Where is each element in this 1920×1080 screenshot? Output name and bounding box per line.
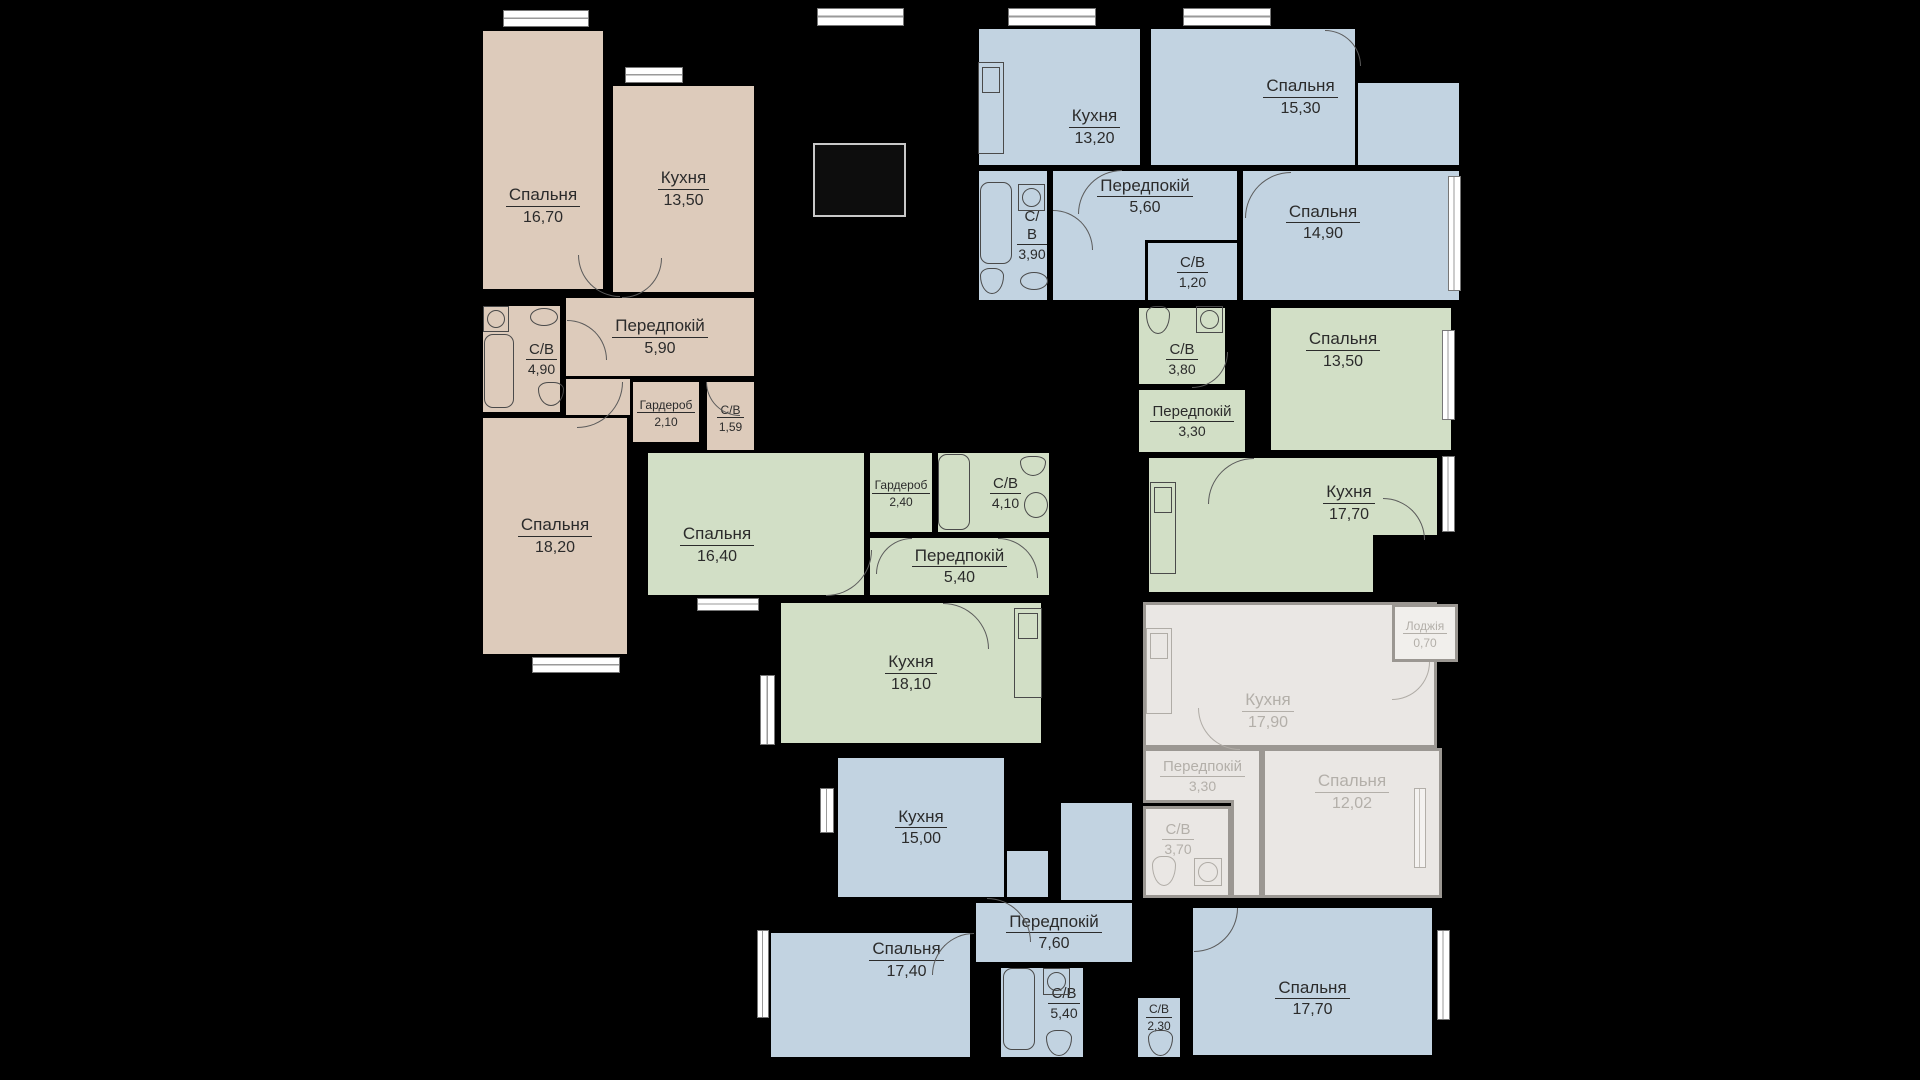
room-label: С/В 3,90 (1017, 208, 1047, 263)
room-loggia: Лоджія 0,70 (1392, 604, 1458, 662)
room-area-label: 17,90 (1242, 712, 1294, 732)
window (1442, 456, 1455, 532)
bathtub-icon (938, 454, 970, 530)
room-label: Передпокій 3,30 (1150, 402, 1235, 440)
room-label: С/В 4,90 (526, 340, 557, 378)
room-area-label: 5,90 (612, 338, 708, 358)
room-area-label: 18,10 (885, 674, 937, 694)
room-name-label: Спальня (1263, 76, 1337, 97)
stair-core (813, 143, 906, 217)
window (757, 930, 769, 1018)
room-area-label: 14,90 (1286, 223, 1360, 243)
room-label: С/В 4,10 (990, 474, 1021, 512)
room-area-label: 1,20 (1177, 273, 1208, 291)
window (1448, 176, 1461, 291)
room-bedroom: Спальня 18,20 (480, 415, 630, 657)
washing-machine-icon (1043, 968, 1070, 995)
room-label: Гардероб 2,10 (637, 395, 696, 430)
room-label: Лоджія 0,70 (1403, 616, 1447, 651)
room-name-label: Лоджія (1403, 619, 1447, 634)
window (532, 657, 620, 673)
room-name-label: Передпокій (612, 316, 708, 337)
room-name-label: Спальня (680, 524, 754, 545)
room-name-label: С/В (1177, 254, 1208, 273)
window (697, 598, 759, 611)
washing-machine-icon (1196, 306, 1223, 333)
room-area-label: 3,30 (1150, 422, 1235, 440)
window (820, 788, 834, 833)
room-label: Кухня 13,20 (1069, 106, 1121, 148)
bathtub-icon (1003, 968, 1035, 1050)
floor-plan: Спальня 16,70 Кухня 13,50 С/В 4,90 Перед… (0, 0, 1920, 1080)
room-name-label: Кухня (1069, 106, 1121, 127)
room-label: Спальня 17,70 (1275, 978, 1349, 1020)
window (1183, 8, 1271, 26)
kitchen-counter-icon (978, 62, 1004, 154)
room-name-label: Спальня (506, 185, 580, 206)
window (503, 10, 589, 27)
window (1437, 930, 1450, 1020)
room-name-label: Спальня (1315, 771, 1389, 792)
room-area-label: 18,20 (518, 537, 592, 557)
sink-icon (1020, 272, 1048, 290)
room-area-label: 16,40 (680, 546, 754, 566)
room-wardrobe: Гардероб 2,10 (630, 379, 702, 445)
bathtub-icon (980, 182, 1012, 264)
room-name-label: Кухня (1323, 482, 1375, 503)
room-name-label: С/В (1162, 821, 1193, 840)
room-label: Спальня 15,30 (1263, 76, 1337, 118)
window (1414, 788, 1426, 868)
room-area-label: 13,50 (1306, 351, 1380, 371)
room-area-label: 16,70 (506, 207, 580, 227)
sink-icon (530, 308, 558, 326)
room-area-label: 15,00 (895, 828, 947, 848)
room-area-label: 0,70 (1403, 635, 1447, 650)
room-kitchen-extension (1007, 848, 1051, 900)
room-name-label: Передпокій (1150, 403, 1235, 422)
room-name-label: С/В (990, 475, 1021, 494)
room-name-label: Кухня (1242, 690, 1294, 711)
room-name-label: С/В (526, 341, 557, 360)
room-label: Спальня 13,50 (1306, 329, 1380, 371)
kitchen-counter-icon (1014, 608, 1042, 698)
room-label: Кухня 18,10 (885, 652, 937, 694)
room-label: Передпокій 5,90 (612, 316, 708, 358)
room-wardrobe: Гардероб 2,40 (867, 450, 935, 535)
room-kitchen: Кухня 18,10 (778, 600, 1044, 746)
room-name-label: Передпокій (912, 546, 1008, 567)
washing-machine-icon (483, 306, 509, 332)
room-label: Спальня 16,40 (680, 524, 754, 566)
room-name-label: Спальня (869, 939, 943, 960)
room-label: С/В 3,70 (1162, 820, 1193, 858)
room-bedroom-extension (1352, 80, 1462, 168)
room-label: Спальня 14,90 (1286, 202, 1360, 244)
room-bedroom: Спальня 16,70 (480, 28, 606, 292)
room-area-label: 3,30 (1160, 777, 1245, 795)
room-label: Кухня 13,50 (658, 168, 710, 210)
room-area-label: 1,59 (717, 419, 743, 434)
room-area-label: 4,10 (990, 494, 1021, 512)
room-name-label: Спальня (518, 515, 592, 536)
room-name-label: Гардероб (872, 478, 931, 493)
window (1442, 330, 1455, 420)
window (625, 67, 683, 83)
room-area-label: 13,50 (658, 190, 710, 210)
window (1008, 8, 1096, 26)
room-hallway: Передпокій 3,30 (1136, 387, 1248, 455)
washing-machine-icon (1194, 858, 1222, 886)
room-label: Спальня 18,20 (518, 515, 592, 557)
room-label: Кухня 17,90 (1242, 690, 1294, 732)
room-label: Спальня 16,70 (506, 185, 580, 227)
room-area-label: 3,90 (1017, 245, 1047, 263)
room-label: Гардероб 2,40 (872, 475, 931, 510)
room-name-label: Спальня (1306, 329, 1380, 350)
room-hallway-extension (1231, 800, 1262, 898)
room-name-label: Кухня (658, 168, 710, 189)
room-label: С/В 1,20 (1177, 253, 1208, 291)
balcony-cutout (1373, 535, 1437, 592)
room-area-label: 5,40 (912, 567, 1008, 587)
room-area-label: 4,90 (526, 360, 557, 378)
room-name-label: Передпокій (1160, 758, 1245, 777)
room-label: Спальня 12,02 (1315, 771, 1389, 813)
sink-icon (1024, 492, 1048, 518)
room-label: Кухня 17,70 (1323, 482, 1375, 524)
room-name-label: С/В (1146, 1002, 1172, 1017)
room-hallway-extension (1058, 800, 1135, 903)
bathtub-icon (484, 334, 514, 408)
room-label: Кухня 15,00 (895, 807, 947, 849)
room-name-label: Спальня (1275, 978, 1349, 999)
room-name-label: Кухня (895, 807, 947, 828)
room-area-label: 5,40 (1048, 1004, 1079, 1022)
window (760, 675, 775, 745)
room-hallway: Передпокій 3,30 (1143, 748, 1262, 803)
room-name-label: Кухня (885, 652, 937, 673)
room-bedroom: Спальня 13,50 (1268, 305, 1454, 453)
room-kitchen: Кухня 15,00 (835, 755, 1007, 900)
room-label: Передпокій 3,30 (1160, 757, 1245, 795)
room-area-label: 17,70 (1323, 504, 1375, 524)
room-name-label: С/В (1017, 208, 1047, 245)
room-name-label: Гардероб (637, 398, 696, 413)
room-area-label: 17,70 (1275, 999, 1349, 1019)
kitchen-counter-icon (1150, 482, 1176, 574)
room-area-label: 13,20 (1069, 128, 1121, 148)
kitchen-counter-icon (1146, 628, 1172, 714)
room-area-label: 2,40 (872, 494, 931, 509)
window (817, 8, 904, 26)
room-bathroom: С/В 1,20 (1145, 240, 1240, 303)
room-area-label: 15,30 (1263, 98, 1337, 118)
room-label: Передпокій 5,40 (912, 546, 1008, 588)
room-area-label: 2,10 (637, 414, 696, 429)
room-name-label: Спальня (1286, 202, 1360, 223)
room-label: С/В 2,30 (1146, 999, 1172, 1034)
room-area-label: 12,02 (1315, 793, 1389, 813)
washing-machine-icon (1018, 184, 1045, 211)
